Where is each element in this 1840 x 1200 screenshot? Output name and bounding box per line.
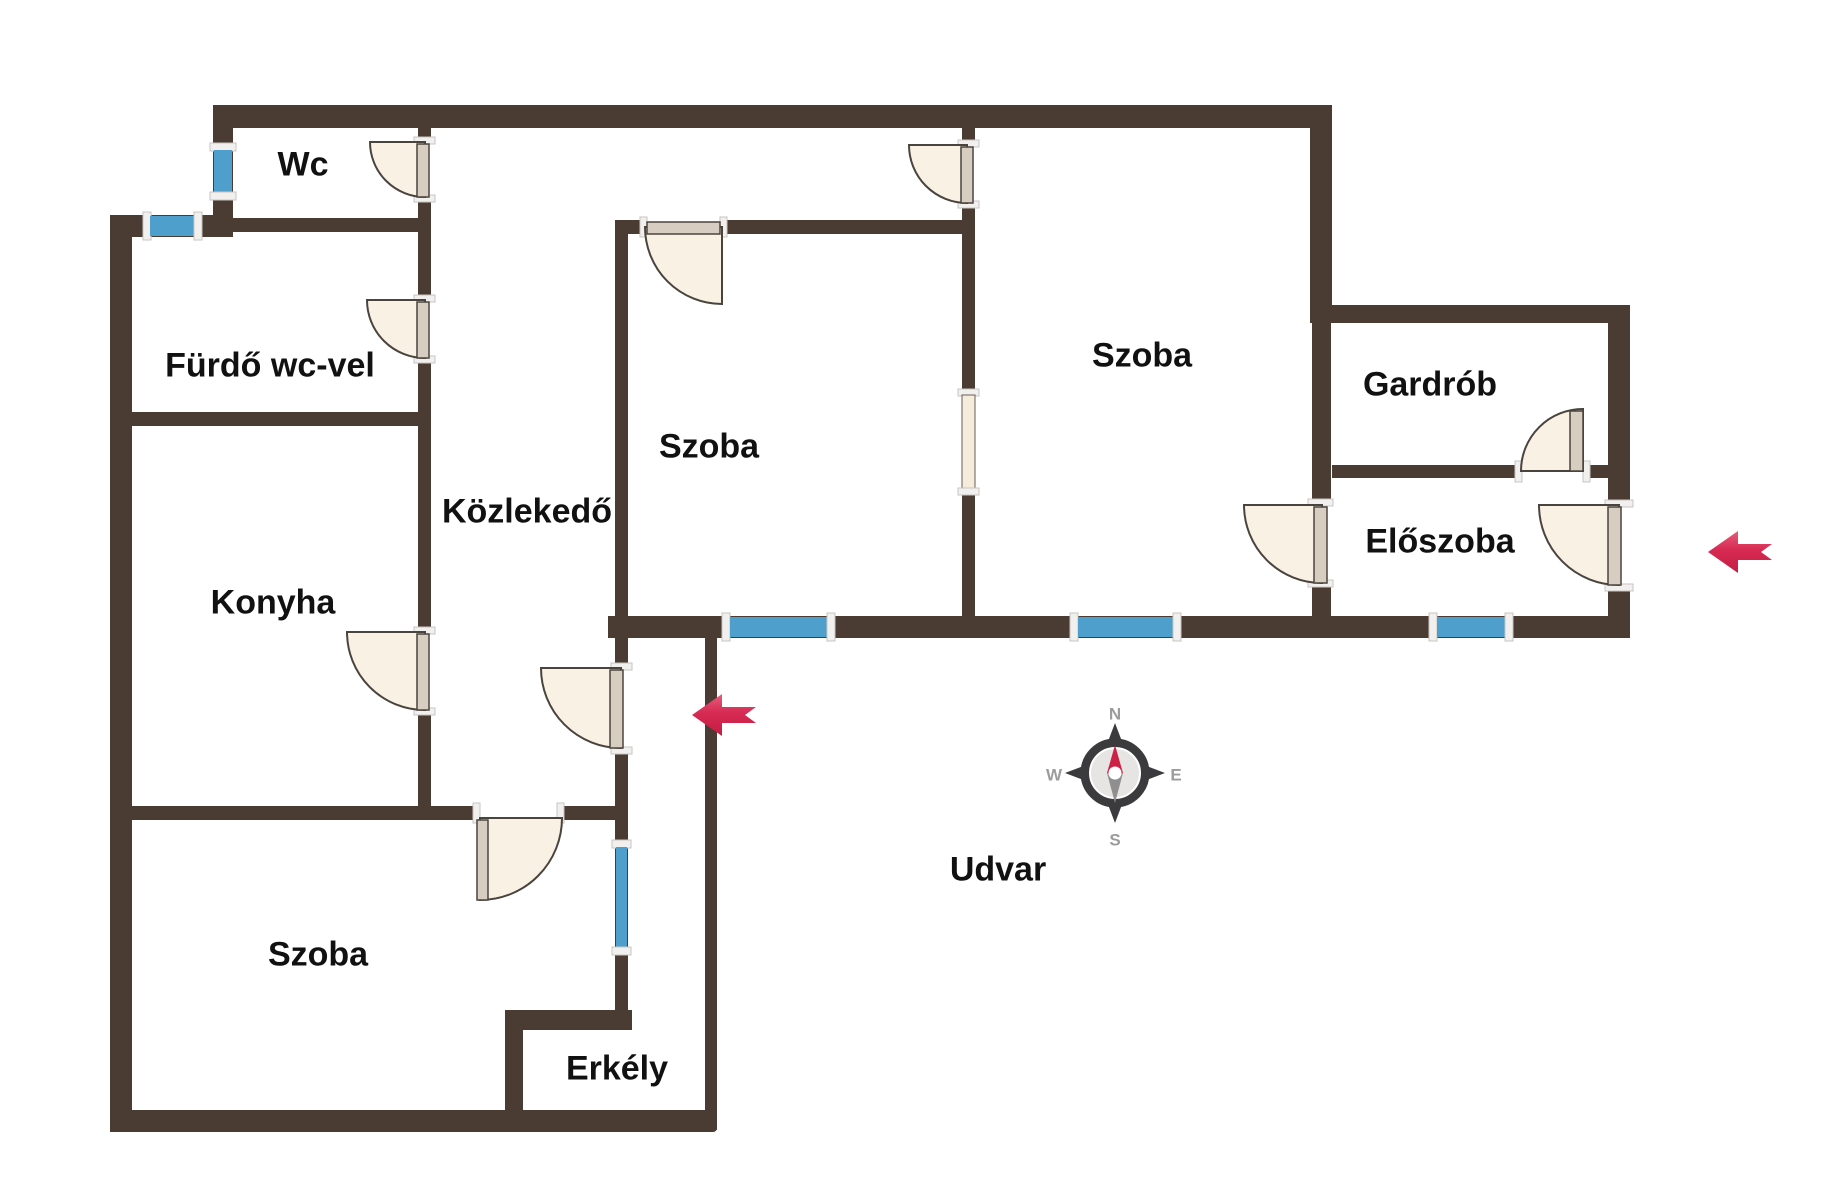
door-eloszoba-to-room [1244, 505, 1327, 583]
compass-letter-s: S [1109, 831, 1120, 850]
door-lower-room [477, 818, 562, 900]
window-eloszoba [1429, 613, 1513, 641]
door-kitchen [347, 632, 429, 710]
room-label-udvar: Udvar [950, 851, 1046, 890]
room-label-furdo: Fürdő wc-vel [165, 347, 375, 386]
room-label-kozlekedo: Közlekedő [442, 493, 612, 532]
room-label-wc: Wc [278, 146, 329, 185]
compass-letter-w: W [1046, 766, 1063, 785]
entrance-arrow-courtyard [692, 694, 756, 736]
compass-letter-n: N [1109, 705, 1121, 724]
room-label-erkely: Erkély [566, 1050, 668, 1089]
floor-plan: N E S W Wc Fürdő wc-vel Konyha Szoba Köz… [0, 0, 1840, 1200]
room-label-konyha: Konyha [211, 584, 336, 623]
window-right-room [1070, 613, 1181, 641]
compass-letter-e: E [1170, 766, 1181, 785]
entrance-arrow-main [1708, 531, 1772, 573]
door-corridor-to-gallery [541, 668, 623, 748]
room-label-szoba-bal: Szoba [268, 936, 368, 975]
door-middle-room [645, 222, 722, 304]
window-middle-room [722, 613, 835, 641]
door-entrance [1539, 505, 1621, 585]
walls-layer [110, 105, 1630, 1132]
compass-rose: N E S W [1046, 705, 1182, 850]
window-bathroom-top [143, 212, 202, 240]
window-gallery [612, 840, 631, 955]
door-gardrob [1521, 409, 1583, 471]
room-label-szoba-jobb: Szoba [1092, 337, 1192, 376]
room-label-gardrob: Gardrób [1363, 366, 1497, 405]
door-wc [370, 142, 429, 197]
room-label-eloszoba: Előszoba [1365, 523, 1514, 562]
door-right-room [909, 145, 973, 203]
door-bathroom [367, 300, 429, 358]
wall-opening-between-rooms [958, 389, 979, 495]
room-label-szoba-kozep: Szoba [659, 428, 759, 467]
